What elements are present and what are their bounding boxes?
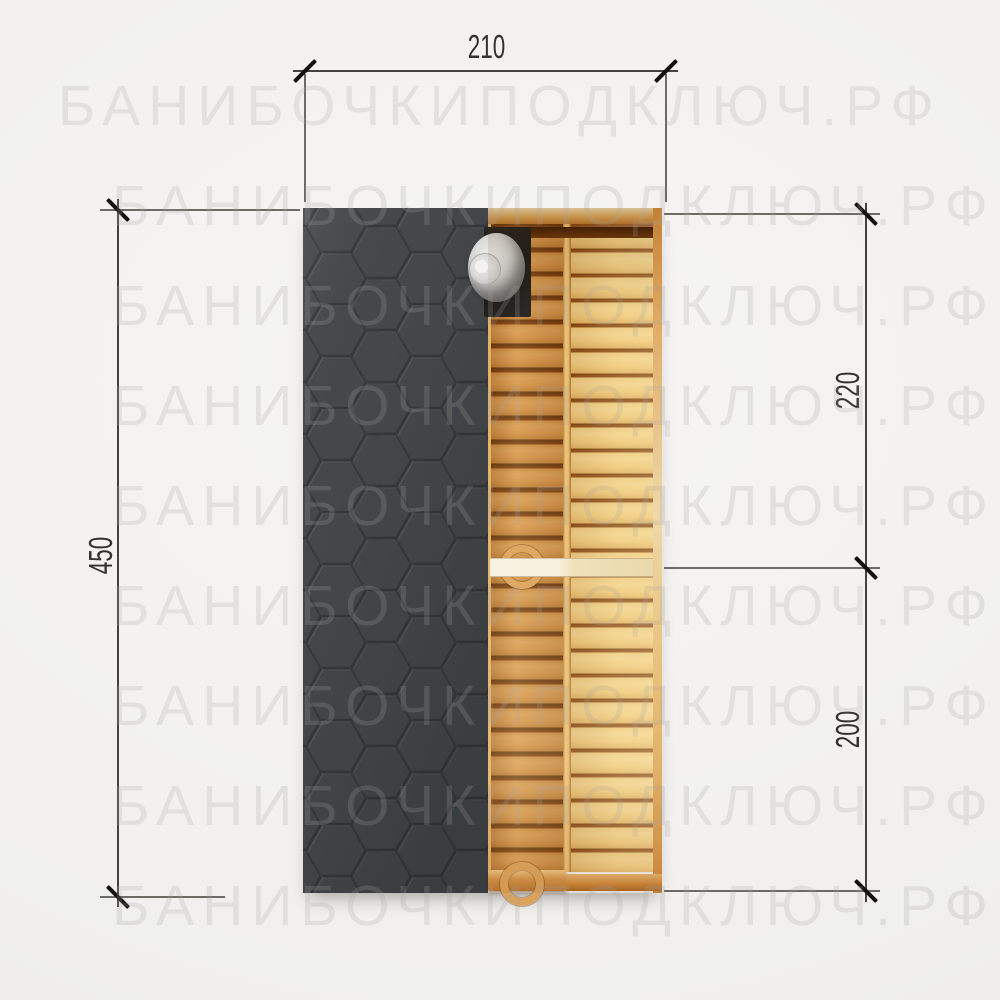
watermark-text: БАНИБОЧКИПОДКЛЮЧ.РФ	[58, 78, 942, 135]
top-width-label: 210	[437, 30, 537, 64]
partition-strip	[490, 558, 653, 577]
deck-bottom-beam	[566, 874, 662, 891]
roof-shingles	[303, 208, 488, 893]
extension-line	[664, 567, 880, 569]
entrance-door-handle	[500, 862, 544, 906]
sauna-building-plan	[303, 208, 662, 893]
divider-beam	[563, 224, 571, 872]
right-upper-label: 220	[831, 340, 865, 440]
dimension-line	[865, 203, 867, 902]
dimension-line	[293, 70, 678, 72]
extension-line	[664, 890, 880, 892]
extension-line	[304, 74, 306, 202]
top-frame-beam	[488, 208, 662, 224]
chimney-cap-center	[475, 260, 488, 273]
extension-line	[665, 74, 667, 202]
right-frame-beam	[653, 208, 662, 893]
sauna-plan-drawing: 210 450 220 200	[0, 0, 1000, 1000]
right-lower-label: 200	[831, 679, 865, 779]
extension-line	[100, 209, 300, 211]
bench-plank-column	[571, 224, 653, 872]
extension-line	[664, 213, 880, 215]
left-height-label: 450	[84, 505, 118, 605]
